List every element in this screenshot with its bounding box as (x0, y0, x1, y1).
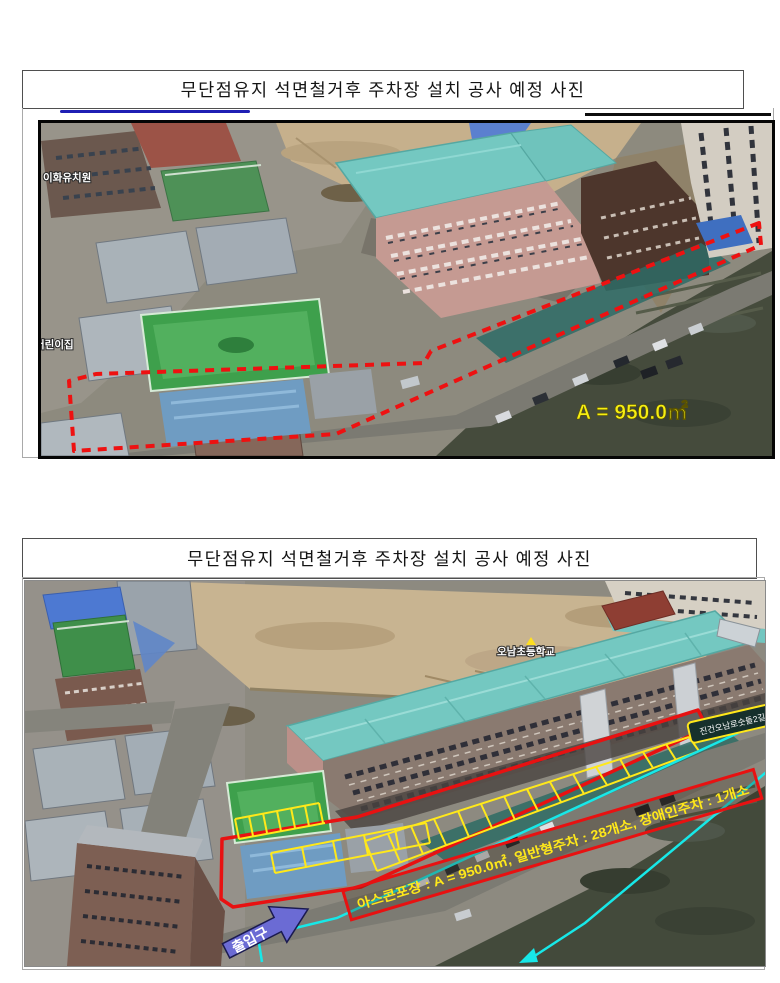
map-label-kindergarten: 이화유치원 (43, 171, 91, 184)
aerial-photo-bottom-svg: 진건오남로숫돌2길 아스콘포장 : A = 950.0㎡, 일반형주차 : 28… (25, 581, 765, 966)
aerial-photo-top-svg: A = 950.0㎡ 이화유치원 어린이집 (41, 123, 772, 456)
map-label-school: 오남초등학교 (497, 645, 555, 658)
panel2-title-text: 무단점유지 석면철거후 주차장 설치 공사 예정 사진 (187, 546, 592, 571)
aerial-photo-top: A = 950.0㎡ 이화유치원 어린이집 (38, 120, 775, 459)
panel1-title: 무단점유지 석면철거후 주차장 설치 공사 예정 사진 (22, 70, 744, 109)
panel1-title-text: 무단점유지 석면철거후 주차장 설치 공사 예정 사진 (181, 77, 586, 102)
document-page: { "panels": { "top": { "title": "무단점유지 석… (0, 0, 780, 983)
panel2-title: 무단점유지 석면철거후 주차장 설치 공사 예정 사진 (22, 538, 757, 579)
aerial-photo-bottom: 진건오남로숫돌2길 아스콘포장 : A = 950.0㎡, 일반형주차 : 28… (24, 580, 766, 967)
playground (141, 299, 329, 391)
area-label: A = 950.0㎡ (576, 400, 688, 424)
map-label-daycare: 어린이집 (41, 338, 74, 351)
